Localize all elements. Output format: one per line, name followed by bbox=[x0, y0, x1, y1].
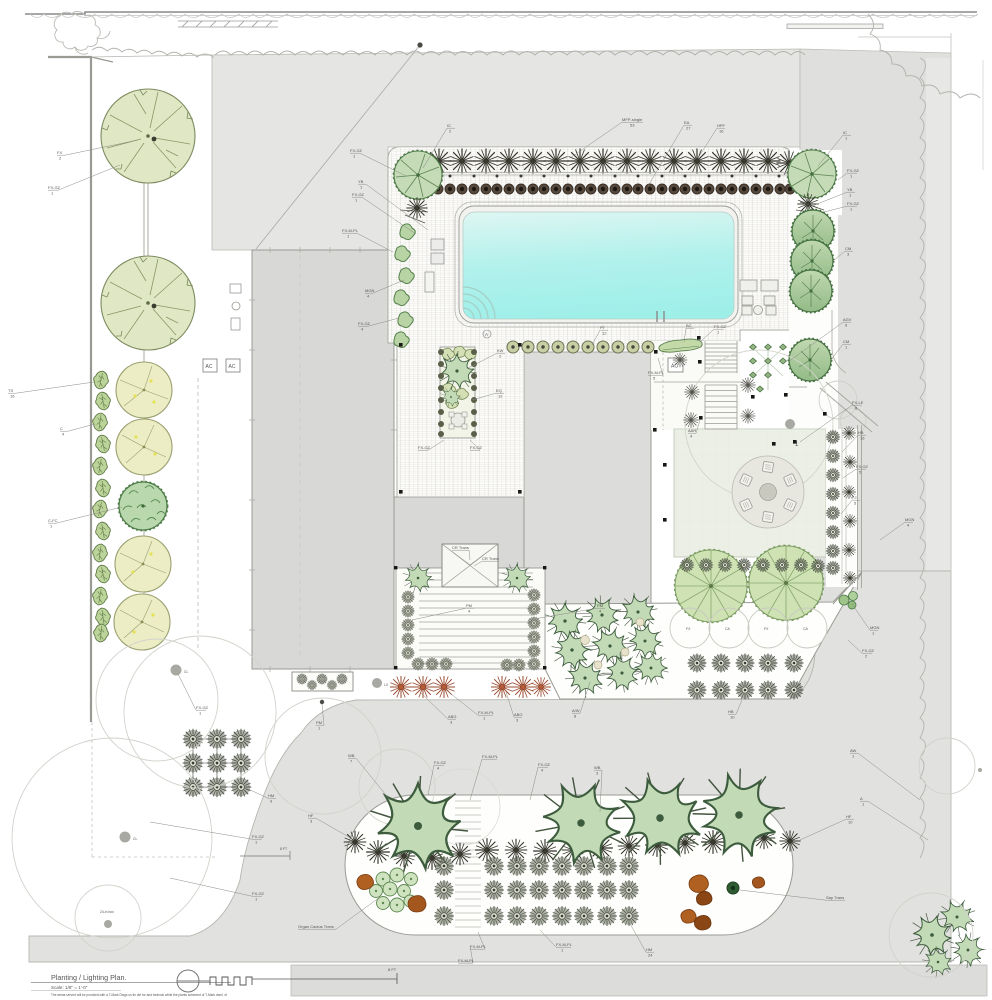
svg-text:EA: EA bbox=[684, 120, 690, 125]
svg-text:HF: HF bbox=[846, 814, 852, 819]
svg-text:CL: CL bbox=[133, 837, 137, 841]
svg-text:ABG: ABG bbox=[448, 714, 456, 719]
svg-text:C: C bbox=[60, 426, 63, 431]
svg-text:TS: TS bbox=[8, 388, 13, 393]
svg-text:Scale: 1/8" = 1'-0": Scale: 1/8" = 1'-0" bbox=[51, 985, 88, 990]
svg-text:10: 10 bbox=[730, 715, 735, 720]
svg-text:FX: FX bbox=[57, 150, 62, 155]
svg-text:HM: HM bbox=[268, 793, 274, 798]
svg-text:FX-GZ: FX-GZ bbox=[434, 760, 447, 765]
svg-text:HB: HB bbox=[728, 709, 734, 714]
svg-text:A/W: A/W bbox=[572, 708, 580, 713]
svg-text:FX-LE: FX-LE bbox=[852, 400, 864, 405]
svg-text:FX-GZ: FX-GZ bbox=[196, 705, 209, 710]
svg-text:MGN: MGN bbox=[870, 625, 879, 630]
svg-text:PT: PT bbox=[600, 325, 606, 330]
svg-text:LX: LX bbox=[384, 683, 389, 687]
svg-text:YB: YB bbox=[847, 187, 853, 192]
svg-text:HF: HF bbox=[308, 813, 314, 818]
svg-text:CA: CA bbox=[803, 627, 809, 631]
svg-text:CA: CA bbox=[725, 627, 731, 631]
svg-text:AC: AC bbox=[206, 364, 213, 370]
svg-text:FX-GZ: FX-GZ bbox=[252, 891, 265, 896]
svg-text:A: A bbox=[485, 332, 488, 337]
svg-text:FX: FX bbox=[764, 627, 769, 631]
svg-text:WB: WB bbox=[348, 753, 355, 758]
svg-text:FX-M-PL: FX-M-PL bbox=[556, 942, 573, 947]
svg-text:12: 12 bbox=[498, 394, 503, 399]
svg-text:HPF: HPF bbox=[717, 123, 726, 128]
svg-text:FX-GZ: FX-GZ bbox=[470, 445, 483, 450]
svg-text:FX: FX bbox=[686, 627, 691, 631]
svg-text:A: A bbox=[860, 796, 863, 801]
svg-text:CM: CM bbox=[843, 339, 849, 344]
svg-text:CR Trans: CR Trans bbox=[452, 545, 469, 550]
svg-text:AW: AW bbox=[850, 748, 857, 753]
svg-text:AC: AC bbox=[229, 364, 236, 370]
svg-text:FX-M-PL: FX-M-PL bbox=[482, 754, 499, 759]
svg-text:MGN: MGN bbox=[365, 288, 374, 293]
svg-text:The areas served will be provi: The areas served will be provided with a… bbox=[51, 993, 227, 997]
svg-text:MGN: MGN bbox=[905, 517, 914, 522]
svg-text:24: 24 bbox=[648, 953, 653, 958]
svg-text:27: 27 bbox=[686, 126, 691, 131]
svg-text:KW: KW bbox=[497, 348, 504, 353]
svg-text:BC: BC bbox=[686, 323, 692, 328]
svg-text:53: 53 bbox=[630, 123, 635, 128]
svg-text:PM: PM bbox=[597, 603, 603, 608]
svg-text:24-in box: 24-in box bbox=[100, 910, 114, 914]
svg-text:FX-GZ: FX-GZ bbox=[352, 192, 365, 197]
svg-text:CR Trans: CR Trans bbox=[482, 556, 499, 561]
svg-text:16: 16 bbox=[719, 129, 724, 134]
svg-text:HM: HM bbox=[646, 947, 652, 952]
svg-text:10: 10 bbox=[848, 820, 853, 825]
svg-text:CM: CM bbox=[845, 246, 851, 251]
svg-text:Planting / Lighting Plan.: Planting / Lighting Plan. bbox=[51, 973, 127, 982]
svg-text:FX-GZ: FX-GZ bbox=[847, 168, 860, 173]
svg-text:IC: IC bbox=[843, 130, 847, 135]
svg-text:EQ: EQ bbox=[496, 388, 502, 393]
svg-text:FX-GZ: FX-GZ bbox=[252, 834, 265, 839]
svg-text:AGV: AGV bbox=[843, 317, 852, 322]
svg-text:AAH: AAH bbox=[688, 428, 696, 433]
svg-text:FX-GZ: FX-GZ bbox=[856, 464, 869, 469]
svg-text:16: 16 bbox=[10, 394, 15, 399]
svg-text:MFP-single: MFP-single bbox=[622, 117, 643, 122]
svg-text:8 FT: 8 FT bbox=[280, 847, 288, 851]
svg-text:HB: HB bbox=[858, 430, 864, 435]
svg-text:FX-GZ: FX-GZ bbox=[418, 445, 431, 450]
svg-text:FX-M-PL: FX-M-PL bbox=[470, 944, 487, 949]
svg-text:FX-GZ: FX-GZ bbox=[847, 201, 860, 206]
svg-text:CL: CL bbox=[184, 670, 188, 674]
svg-text:FX-M-PL: FX-M-PL bbox=[478, 710, 495, 715]
svg-text:YB: YB bbox=[358, 179, 364, 184]
svg-text:PM: PM bbox=[316, 720, 322, 725]
svg-text:ABG: ABG bbox=[514, 712, 522, 717]
svg-text:FX-M-PL: FX-M-PL bbox=[458, 958, 475, 963]
svg-text:Organ Cactus Trans: Organ Cactus Trans bbox=[298, 924, 334, 929]
svg-text:FX-GZ: FX-GZ bbox=[350, 148, 363, 153]
svg-text:8 FT: 8 FT bbox=[388, 967, 397, 972]
svg-text:C-FC: C-FC bbox=[48, 518, 58, 523]
svg-text:12: 12 bbox=[602, 331, 607, 336]
svg-text:Sap Trans: Sap Trans bbox=[826, 895, 844, 900]
svg-text:IC: IC bbox=[447, 123, 451, 128]
svg-text:WB: WB bbox=[594, 765, 601, 770]
svg-text:FJ: FJ bbox=[852, 495, 856, 500]
svg-text:FX-GZ: FX-GZ bbox=[358, 321, 371, 326]
svg-text:FX-GZ: FX-GZ bbox=[714, 324, 727, 329]
svg-text:FX-M-PL: FX-M-PL bbox=[648, 370, 665, 375]
svg-text:FX-GZ: FX-GZ bbox=[48, 185, 61, 190]
svg-text:FX-GZ: FX-GZ bbox=[538, 762, 551, 767]
svg-text:FX-GZ: FX-GZ bbox=[862, 648, 875, 653]
svg-text:FX-M-PL: FX-M-PL bbox=[342, 228, 359, 233]
svg-text:PM: PM bbox=[466, 603, 472, 608]
svg-text:16: 16 bbox=[860, 436, 865, 441]
